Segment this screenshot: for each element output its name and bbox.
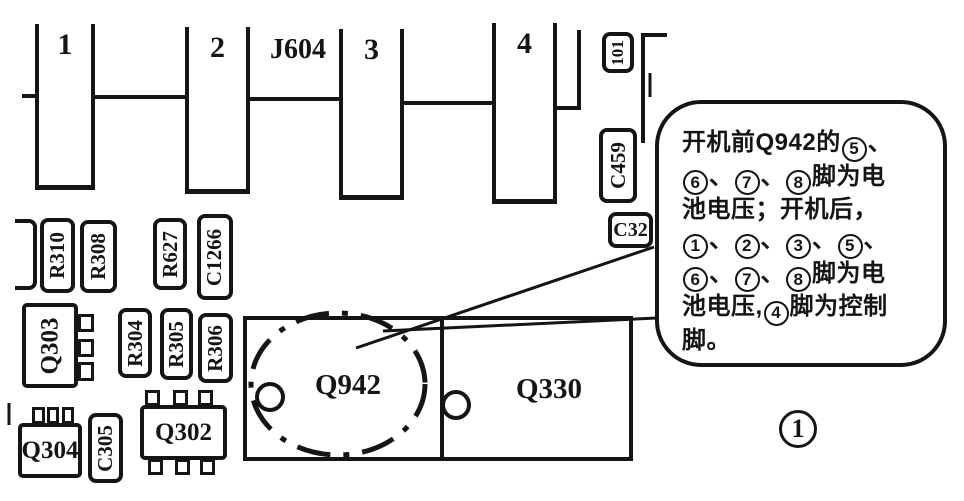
tab-label: 2 xyxy=(210,31,225,65)
component-label: R310 xyxy=(45,232,70,279)
circled-pin-number: 5 xyxy=(838,234,863,259)
connector-tab-4: 4 xyxy=(492,23,557,204)
transistor-q304: Q304 xyxy=(18,423,82,478)
pcb-layout-diagram: 1 2 3 4 J604 R310 R308 R627 C1266 Q303 R… xyxy=(0,0,964,501)
component-r305: R305 xyxy=(160,308,193,380)
component-r306: R306 xyxy=(198,313,233,383)
component-c1266: C1266 xyxy=(197,214,233,300)
circled-pin-number: 6 xyxy=(683,170,708,195)
connector-tab-2: 2 xyxy=(185,27,250,194)
component-c32: C32 xyxy=(608,212,653,248)
q304-pin xyxy=(32,407,45,424)
component-q942-label: Q942 xyxy=(300,369,396,402)
component-label: R304 xyxy=(123,320,148,367)
circled-pin-number: 7 xyxy=(735,267,760,292)
connector-tab-3: 3 xyxy=(339,29,404,200)
component-r627: R627 xyxy=(153,218,187,290)
figure-number: 1 xyxy=(792,414,805,444)
q303-pin xyxy=(78,339,94,357)
component-r308: R308 xyxy=(80,220,117,293)
circled-pin-number: 8 xyxy=(786,267,811,292)
q302-pin xyxy=(175,459,190,475)
circled-pin-number: 8 xyxy=(786,170,811,195)
q304-pin xyxy=(62,407,74,424)
q302-pin xyxy=(198,390,213,406)
component-label: R627 xyxy=(158,231,183,278)
q302-pin xyxy=(200,459,215,475)
component-101: 101 xyxy=(602,32,634,73)
component-label: R305 xyxy=(164,321,189,368)
component-label: Q303 xyxy=(36,317,64,374)
q302-pin xyxy=(145,390,160,406)
circled-pin-number: 6 xyxy=(683,267,708,292)
q302-pin xyxy=(148,459,163,475)
component-label: 101 xyxy=(608,40,628,66)
component-label: C1266 xyxy=(203,228,228,285)
component-label: Q304 xyxy=(22,437,79,465)
component-label: C459 xyxy=(606,142,631,189)
component-label: C32 xyxy=(613,219,647,242)
q303-pin xyxy=(78,314,94,332)
component-r310: R310 xyxy=(40,218,75,293)
circled-pin-number: 2 xyxy=(735,234,760,259)
circled-pin-number: 7 xyxy=(735,170,760,195)
component-c459: C459 xyxy=(599,128,637,203)
tab-label: 1 xyxy=(58,28,73,62)
q303-pin xyxy=(78,362,94,381)
transistor-q303: Q303 xyxy=(22,303,78,388)
circled-pin-number: 4 xyxy=(764,301,789,326)
callout-bubble: 开机前Q942的5、6、7、8脚为电池电压；开机后，1、2、3、5、6、7、8脚… xyxy=(655,100,947,367)
tab-label: 3 xyxy=(364,33,379,67)
connector-tab-1: 1 xyxy=(35,24,95,190)
component-label: Q302 xyxy=(155,419,212,447)
circled-pin-number: 1 xyxy=(683,234,708,259)
transistor-q302: Q302 xyxy=(140,405,227,460)
q302-pin xyxy=(173,390,188,406)
circled-pin-number: 5 xyxy=(842,137,867,162)
component-c305: C305 xyxy=(88,413,123,483)
component-label: R308 xyxy=(86,233,111,280)
component-q330-label: Q330 xyxy=(501,373,597,406)
connector-name-label: J604 xyxy=(262,34,334,66)
tab-label: 4 xyxy=(517,27,532,61)
component-label: R306 xyxy=(203,325,228,372)
callout-text: 开机前Q942的5、6、7、8脚为电池电压；开机后，1、2、3、5、6、7、8脚… xyxy=(659,104,943,356)
cutoff-component-box xyxy=(15,219,37,290)
q304-pin xyxy=(47,407,59,424)
component-label: C305 xyxy=(93,425,118,472)
circled-pin-number: 3 xyxy=(786,234,811,259)
component-r304: R304 xyxy=(118,308,152,378)
figure-number-badge: 1 xyxy=(779,410,817,448)
